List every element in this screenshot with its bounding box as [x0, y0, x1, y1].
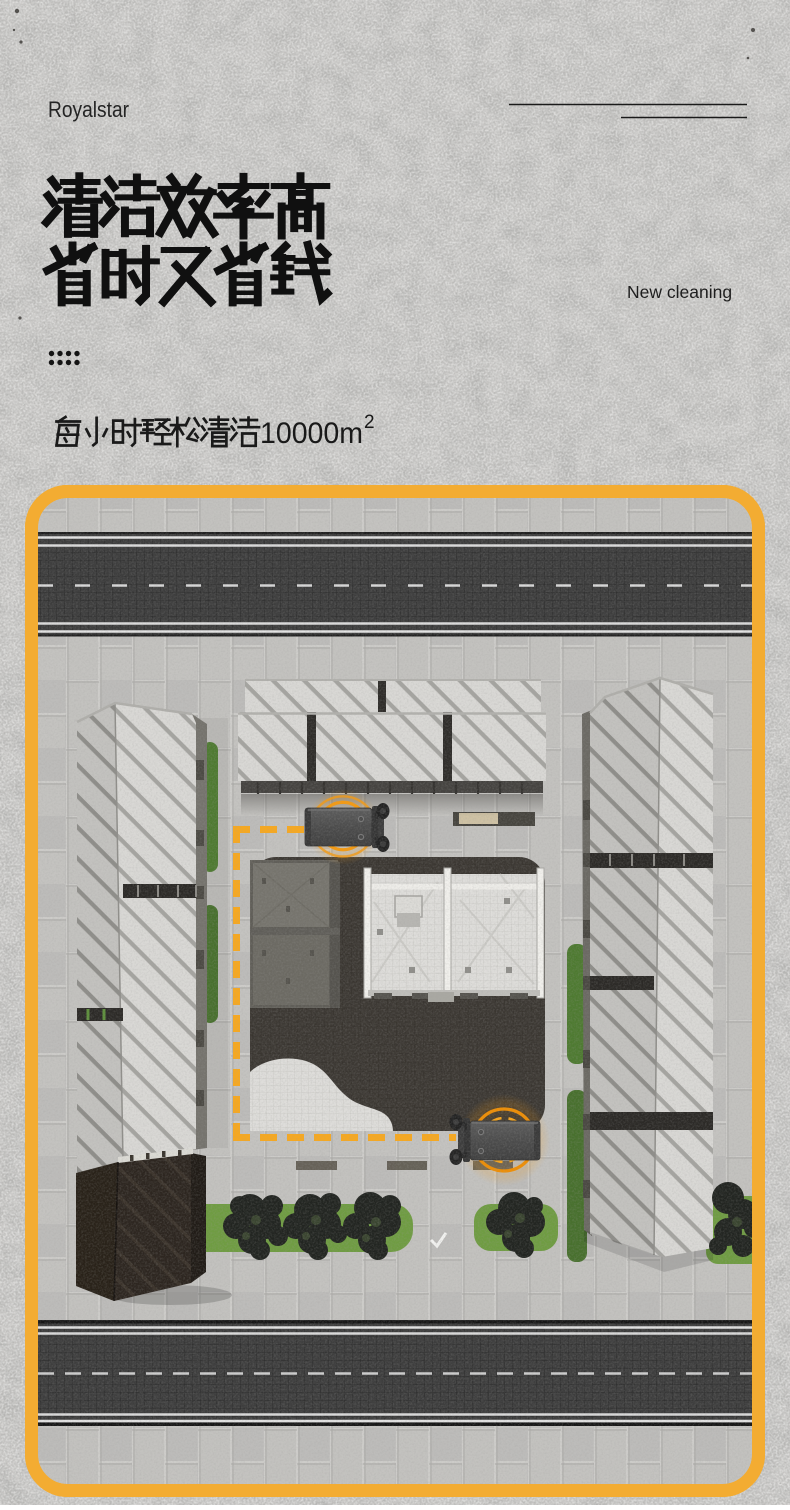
svg-text:Royalstar: Royalstar [48, 97, 129, 122]
svg-text:New cleaning: New cleaning [627, 282, 732, 302]
svg-text:2: 2 [364, 412, 375, 433]
svg-text:10000m: 10000m [260, 417, 363, 450]
